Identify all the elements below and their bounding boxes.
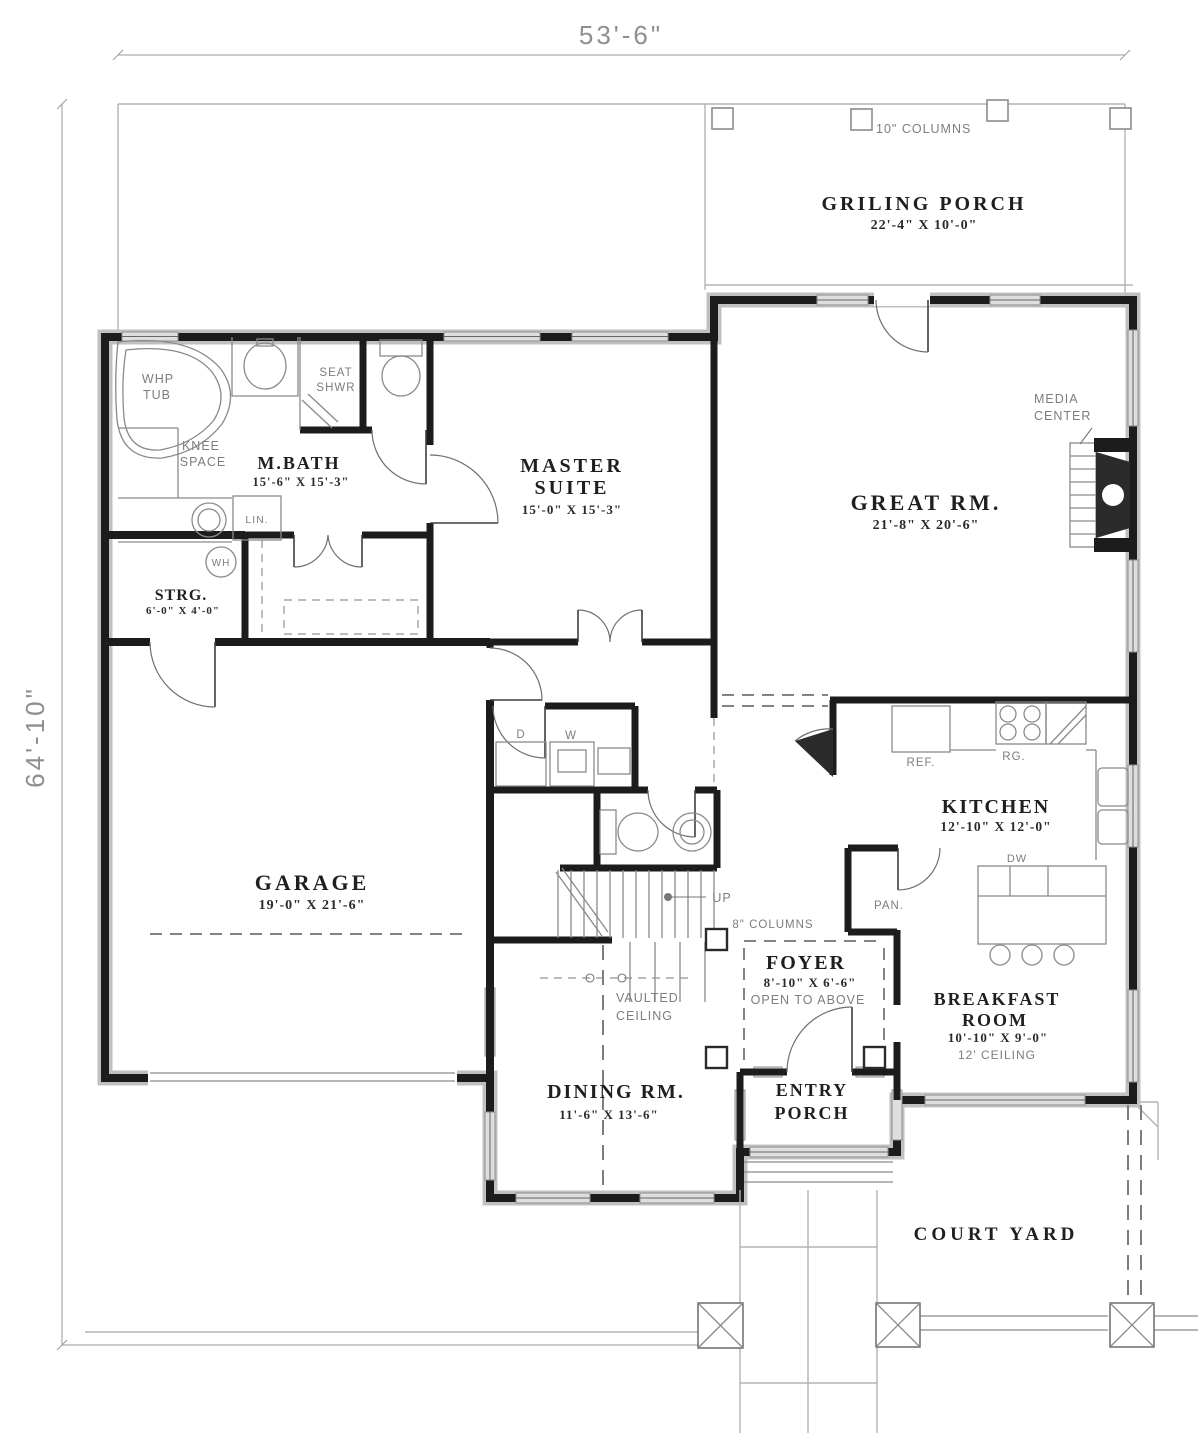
note-8in-columns: 8" COLUMNS [732, 919, 813, 931]
note-ref: REF. [907, 757, 936, 769]
room-label-master-1: MASTER [520, 455, 624, 477]
courtyard-walkway [698, 1162, 1198, 1433]
note-10in-columns: 10" COLUMNS [876, 122, 971, 136]
room-size-foyer: 8'-10" X 6'-6" [764, 975, 857, 990]
courtyard-post-icon [698, 1303, 743, 1348]
room-label-courtyard: COURT YARD [914, 1224, 1079, 1245]
room-size-master: 15'-0" X 15'-3" [522, 502, 622, 517]
courtyard-post-icon [1110, 1303, 1154, 1347]
room-label-strg: STRG. [155, 587, 208, 604]
garage-door-opening [148, 1068, 457, 1086]
room-label-dining: DINING RM. [547, 1081, 685, 1103]
porch-column-icon [1110, 108, 1131, 129]
floorplan-drawing: 53'-6" 64'-10" GRILING PORCH 22'-4" X 10… [0, 0, 1200, 1433]
note-washer: W [565, 730, 577, 742]
note-whp: WHP [142, 372, 174, 386]
note-12-ceiling: 12' CEILING [958, 1048, 1036, 1062]
room-label-kitchen: KITCHEN [942, 796, 1050, 818]
note-vaulted-2: CEILING [616, 1009, 673, 1023]
note-media-2: CENTER [1034, 409, 1091, 423]
foyer-column-icon [706, 929, 727, 950]
foyer-column-icon [706, 1047, 727, 1068]
note-knee: KNEE [182, 439, 220, 453]
note-rg: RG. [1002, 751, 1025, 763]
note-up: UP [712, 891, 731, 905]
room-size-mbath: 15'-6" X 15'-3" [253, 475, 350, 489]
foyer-column-icon [864, 1047, 885, 1068]
porch-column-icon [712, 108, 733, 129]
room-size-great: 21'-8" X 20'-6" [873, 518, 980, 533]
floorplan-canvas: 53'-6" 64'-10" GRILING PORCH 22'-4" X 10… [0, 0, 1200, 1433]
note-dryer: D [516, 729, 525, 741]
note-dw: DW [1007, 853, 1027, 865]
exterior-walls [105, 292, 1133, 1198]
room-size-kitchen: 12'-10" X 12'-0" [940, 819, 1051, 834]
room-label-griling-porch: GRILING PORCH [821, 193, 1026, 215]
great-room-door-opening [874, 292, 930, 306]
note-vaulted-1: VAULTED [616, 991, 679, 1005]
note-pan: PAN. [874, 900, 904, 912]
entry-door-opening [787, 1064, 852, 1078]
porch-column-icon [851, 109, 872, 130]
note-shwr: SHWR [316, 382, 355, 394]
room-label-foyer: FOYER [766, 952, 846, 974]
room-label-entry-1: ENTRY [776, 1080, 848, 1100]
room-label-breakfast-1: BREAKFAST [934, 989, 1061, 1009]
room-size-dining: 11'-6" X 13'-6" [559, 1107, 659, 1122]
room-size-griling-porch: 22'-4" X 10'-0" [871, 218, 978, 233]
note-space: SPACE [180, 455, 226, 469]
room-label-garage: GARAGE [255, 870, 370, 895]
note-seat: SEAT [319, 367, 352, 379]
note-media-1: MEDIA [1034, 392, 1079, 406]
room-label-entry-2: PORCH [775, 1103, 850, 1123]
room-size-garage: 19'-0" X 21'-6" [259, 898, 366, 913]
room-size-breakfast: 10'-10" X 9'-0" [948, 1030, 1048, 1045]
porch-column-icon [987, 100, 1008, 121]
courtyard-post-icon [876, 1303, 920, 1347]
up-arrow-node [664, 893, 672, 901]
note-open-above: OPEN TO ABOVE [751, 993, 866, 1007]
dimension-depth: 64'-10" [20, 686, 50, 788]
room-label-breakfast-2: ROOM [962, 1010, 1028, 1030]
room-label-great: GREAT RM. [851, 490, 1002, 515]
room-label-master-2: SUITE [534, 477, 609, 499]
note-tub: TUB [143, 388, 171, 402]
room-size-strg: 6'-0" X 4'-0" [146, 605, 220, 617]
note-wh: WH [212, 558, 231, 569]
room-label-mbath: M.BATH [257, 453, 340, 473]
note-lin: LIN. [245, 514, 268, 526]
dimension-width: 53'-6" [579, 20, 663, 50]
